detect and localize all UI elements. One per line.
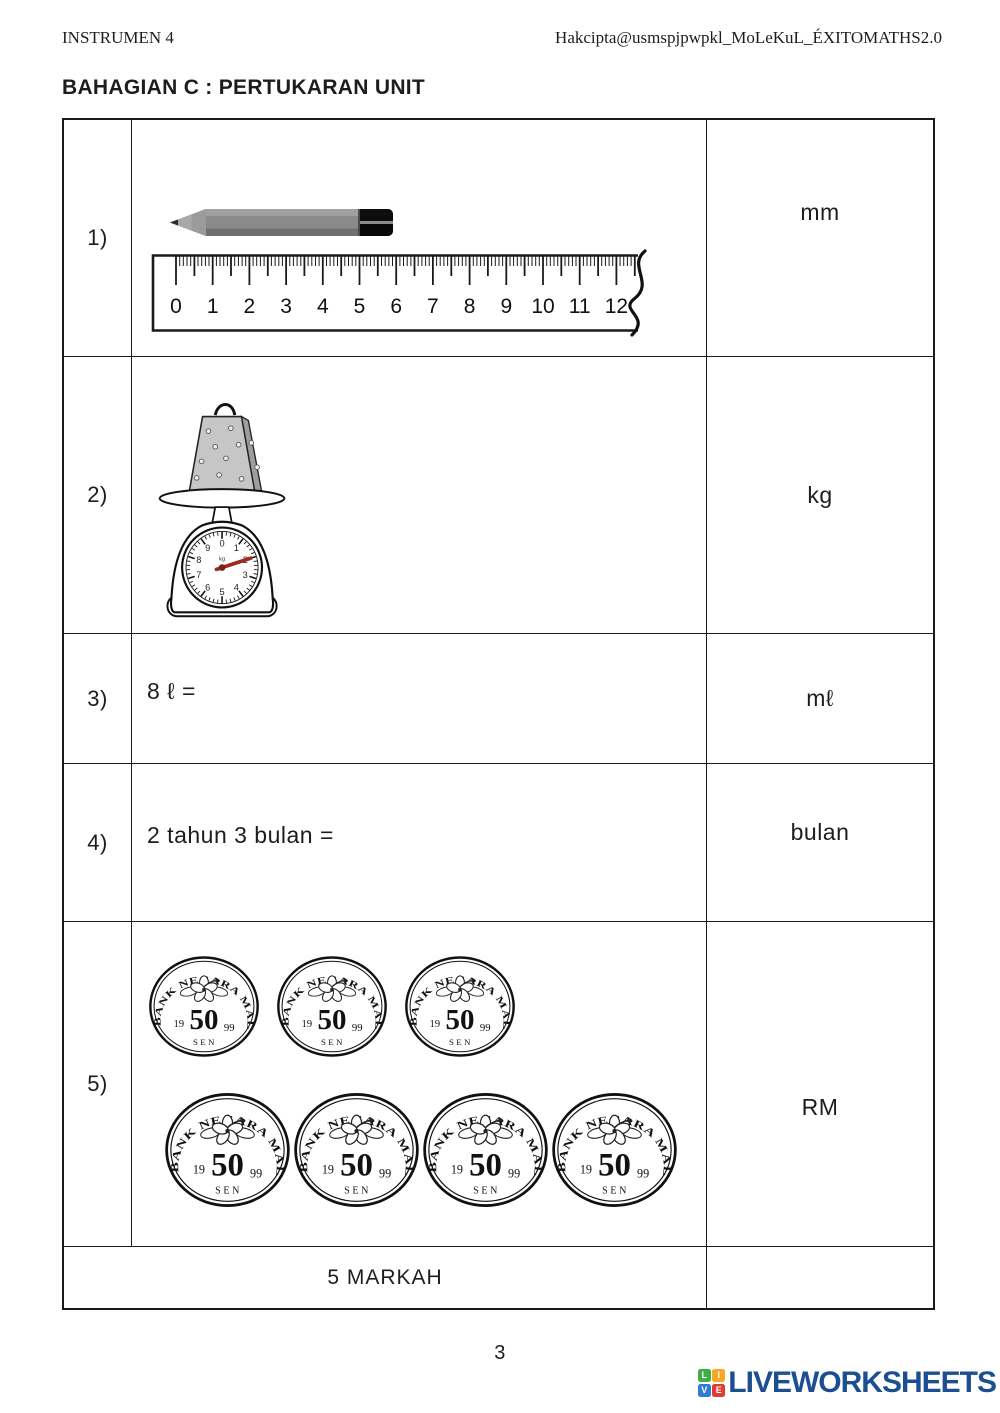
coin-50-sen: BANK NEGARA MALAYSIA 19 50 99 SEN [164,1091,291,1209]
pencil-cap [358,209,393,236]
pencil-tip [170,209,206,236]
svg-text:4: 4 [317,295,329,318]
coin-50-sen: BANK NEGARA MALAYSIA 19 50 99 SEN [551,1091,678,1209]
worksheet-page: INSTRUMEN 4 Hakcipta@usmspjpwpkl_MoLeKuL… [0,0,1000,1413]
svg-text:19: 19 [580,1162,592,1176]
svg-text:SEN: SEN [473,1185,500,1196]
scale-plate [160,489,285,508]
svg-text:1: 1 [207,295,219,318]
svg-text:6: 6 [390,295,402,318]
liveworksheets-logo-text: LIVEWORKSHEETS [728,1366,996,1400]
svg-text:1: 1 [234,543,239,553]
svg-text:9: 9 [205,543,210,553]
question-5-figure-cell: BANK NEGARA MALAYSIA 19 50 99 SEN BANK N… [132,922,707,1247]
svg-text:4: 4 [234,582,239,592]
svg-text:SEN: SEN [193,1037,217,1047]
svg-text:SEN: SEN [321,1037,345,1047]
svg-text:10: 10 [531,295,554,318]
question-1-figure-cell: 0123456789101112 [132,120,707,357]
svg-text:19: 19 [301,1018,312,1030]
pencil-image [170,209,393,236]
svg-text:3: 3 [243,570,248,580]
logo-letter-square: L [698,1369,711,1382]
svg-text:7: 7 [427,295,439,318]
svg-text:9: 9 [500,295,512,318]
svg-text:19: 19 [173,1018,184,1030]
svg-text:50: 50 [469,1147,502,1183]
coin-row-top: BANK NEGARA MALAYSIA 19 50 99 SEN BANK N… [148,955,706,1058]
weighing-scale-image: 0123456789kg [144,399,304,625]
answer-unit: kg [807,482,832,509]
answer-cell-4: bulan [707,764,933,922]
svg-text:50: 50 [446,1004,475,1036]
svg-text:50: 50 [598,1147,631,1183]
svg-text:3: 3 [280,295,292,318]
svg-text:0: 0 [170,295,182,318]
svg-text:2: 2 [244,295,256,318]
pencil-body [206,209,358,236]
answer-cell-1: mm [707,120,933,357]
answer-unit: bulan [791,819,850,846]
answer-cell-2: kg [707,357,933,634]
svg-text:99: 99 [379,1167,391,1181]
coin-50-sen: BANK NEGARA MALAYSIA 19 50 99 SEN [276,955,388,1058]
answer-unit: mm [800,199,839,226]
svg-text:50: 50 [318,1004,347,1036]
question-number-4: 4) [64,764,132,922]
svg-text:5: 5 [219,587,224,597]
svg-text:6: 6 [205,582,210,592]
svg-text:SEN: SEN [449,1037,473,1047]
svg-text:99: 99 [508,1167,520,1181]
coin-row-bottom: BANK NEGARA MALAYSIA 19 50 99 SEN BANK N… [164,1091,706,1209]
logo-letter-square: E [712,1384,725,1397]
header-instrument: INSTRUMEN 4 [62,28,174,48]
question-4-text: 2 tahun 3 bulan = [132,764,707,922]
marks-answer-cell [707,1247,933,1308]
svg-text:8: 8 [464,295,476,318]
svg-text:50: 50 [190,1004,219,1036]
svg-text:99: 99 [250,1167,262,1181]
logo-letter-square: V [698,1384,711,1397]
svg-text:SEN: SEN [344,1185,371,1196]
question-number-1: 1) [64,120,132,357]
svg-text:19: 19 [451,1162,463,1176]
svg-text:99: 99 [480,1022,491,1034]
question-number-3: 3) [64,634,132,764]
answer-cell-5: RM [707,922,933,1247]
svg-text:50: 50 [340,1147,373,1183]
svg-text:SEN: SEN [602,1185,629,1196]
svg-text:99: 99 [352,1022,363,1034]
question-number-2: 2) [64,357,132,634]
svg-text:SEN: SEN [215,1185,242,1196]
question-2-figure-cell: 0123456789kg [132,357,707,634]
liveworksheets-logo-icon: LIVE [698,1369,726,1397]
svg-text:19: 19 [193,1162,205,1176]
marks-label: 5 MARKAH [64,1247,707,1308]
shopping-bag [189,404,262,493]
liveworksheets-logo[interactable]: LIVE LIVEWORKSHEETS [698,1366,996,1400]
question-table: 1) 0123456789101112 mm 2) 0123456789kg k… [62,118,935,1310]
answer-cell-3: mℓ [707,634,933,764]
section-title: BAHAGIAN C : PERTUKARAN UNIT [62,76,425,100]
svg-text:12: 12 [605,295,628,318]
svg-text:50: 50 [211,1147,244,1183]
question-number-5: 5) [64,922,132,1247]
logo-letter-square: I [712,1369,725,1382]
svg-text:99: 99 [637,1167,649,1181]
coin-50-sen: BANK NEGARA MALAYSIA 19 50 99 SEN [293,1091,420,1209]
coin-50-sen: BANK NEGARA MALAYSIA 19 50 99 SEN [422,1091,549,1209]
svg-text:5: 5 [354,295,366,318]
coins-image: BANK NEGARA MALAYSIA 19 50 99 SEN BANK N… [132,922,706,1246]
svg-text:11: 11 [569,295,591,318]
svg-text:kg: kg [219,557,225,563]
question-3-text: 8 ℓ = [132,634,707,764]
page-number: 3 [0,1342,1000,1365]
answer-unit: mℓ [806,685,834,712]
svg-text:7: 7 [196,570,201,580]
coin-50-sen: BANK NEGARA MALAYSIA 19 50 99 SEN [404,955,516,1058]
ruler-image: 0123456789101112 [150,253,650,333]
answer-prefix: RM [802,1094,839,1121]
svg-text:8: 8 [196,555,201,565]
svg-text:19: 19 [429,1018,440,1030]
header-copyright: Hakcipta@usmspjpwpkl_MoLeKuL_ÉXITOMATHS2… [555,28,942,48]
svg-text:99: 99 [224,1022,235,1034]
svg-text:19: 19 [322,1162,334,1176]
svg-text:0: 0 [219,538,224,548]
coin-50-sen: BANK NEGARA MALAYSIA 19 50 99 SEN [148,955,260,1058]
